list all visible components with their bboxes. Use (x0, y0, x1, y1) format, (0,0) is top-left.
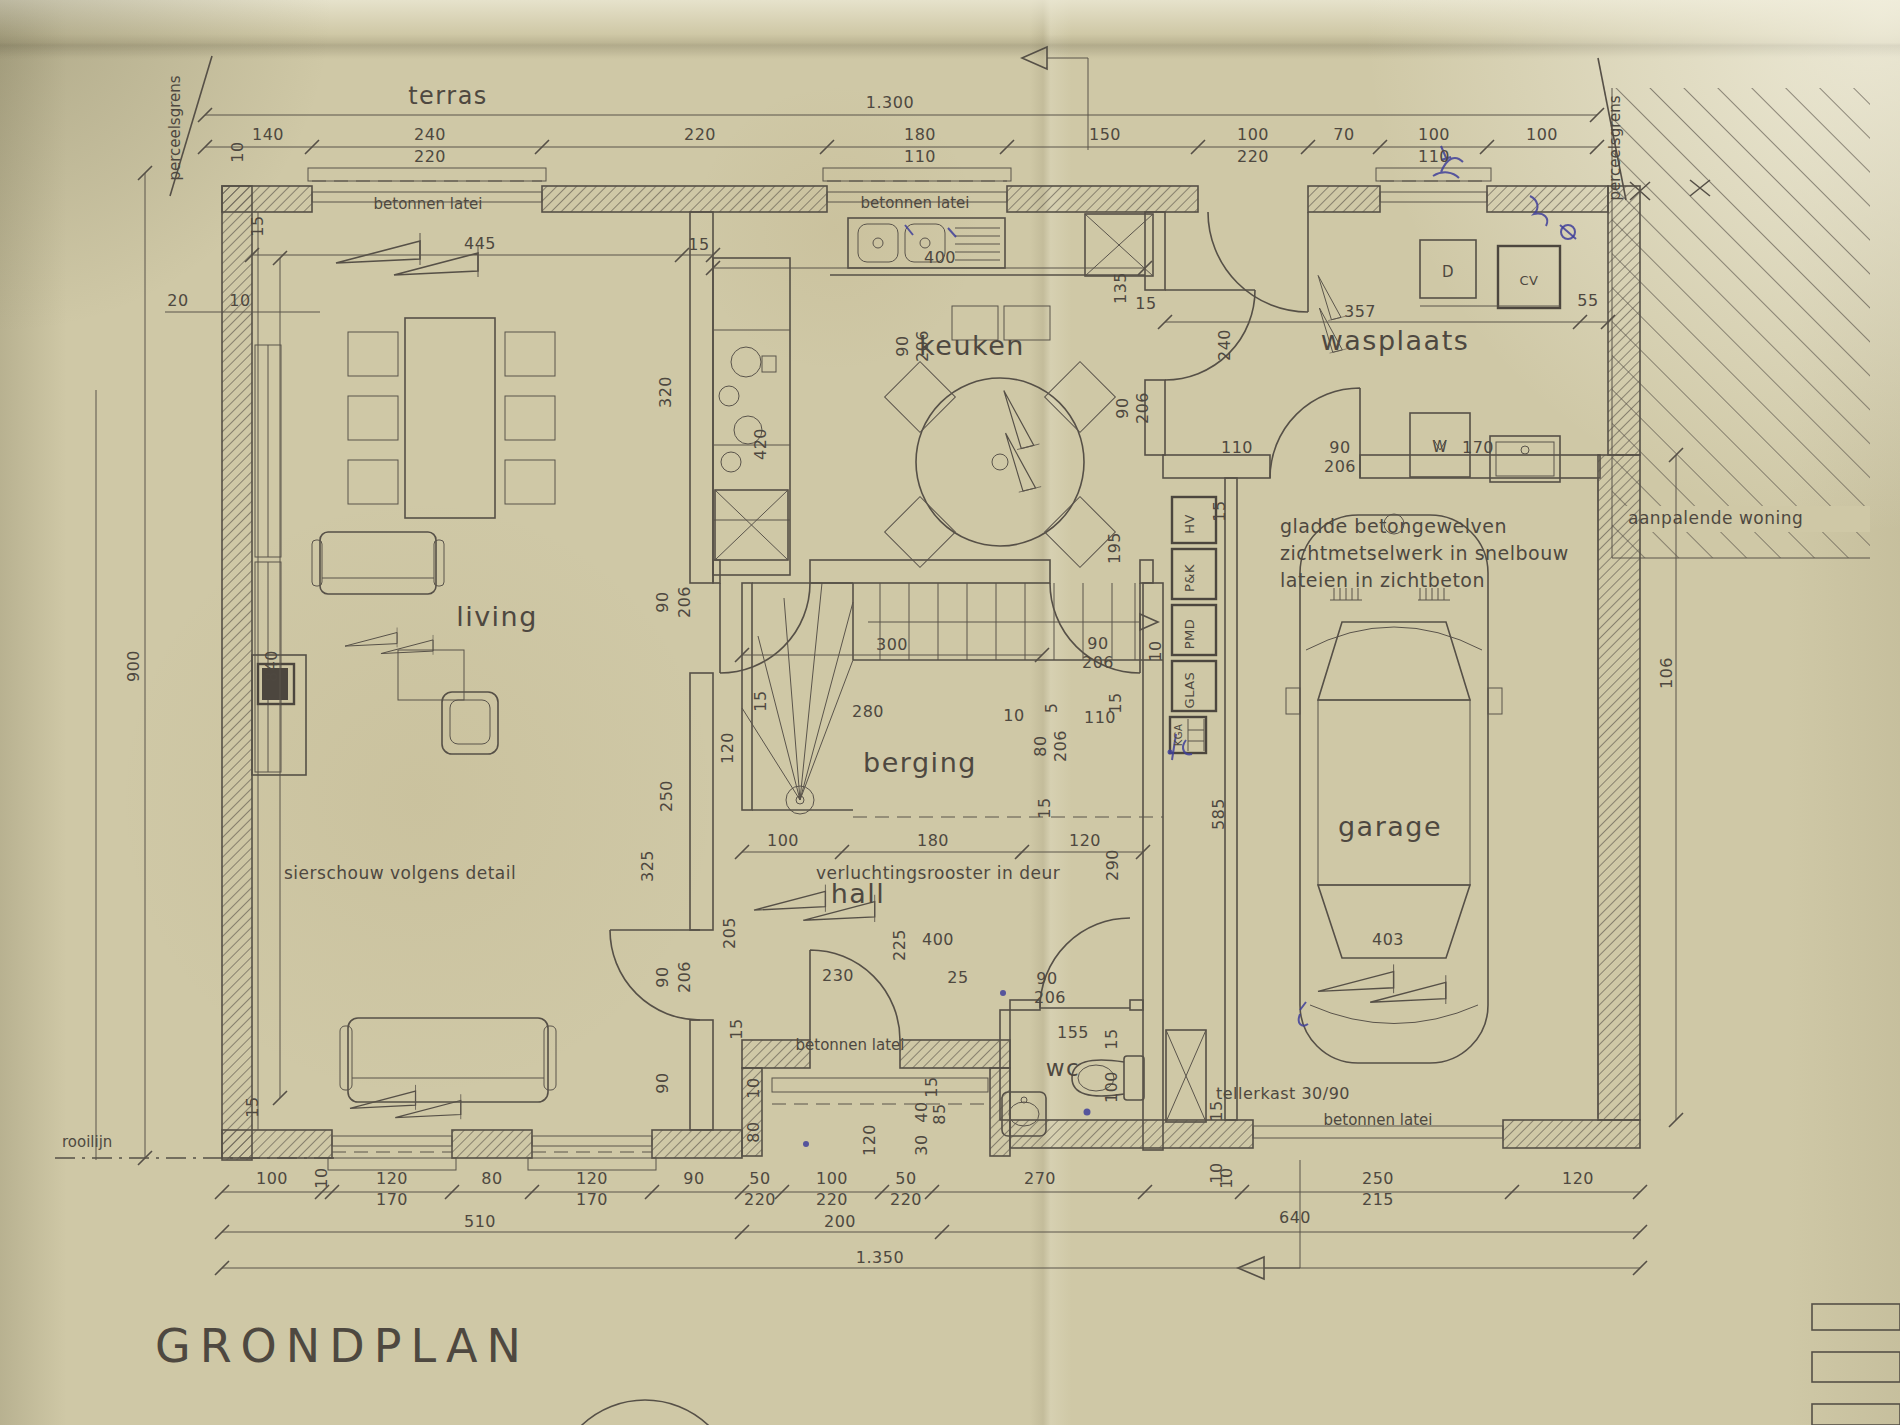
dim-label: 120 (1562, 1169, 1594, 1188)
dim-label: 15 (1210, 500, 1229, 521)
adjoining-house-hatch (1612, 88, 1870, 558)
dim-label: 40 (912, 1101, 931, 1122)
note-betonnen-latei: betonnen latei (374, 195, 483, 213)
dim-label: 120 (576, 1169, 608, 1188)
note-betonnen-latei: betonnen latei (796, 1036, 905, 1054)
dim-label: 110 (1084, 708, 1116, 727)
dim-label: 70 (1333, 125, 1354, 144)
dim-label: 250 (657, 780, 676, 812)
dim-label: 80 (744, 1121, 763, 1142)
dim-label: 15 (751, 690, 770, 711)
dim-label: 55 (1577, 291, 1598, 310)
dim-label: 206 (675, 961, 694, 993)
dim-label: 10 (1146, 640, 1165, 661)
dim-label: 325 (638, 850, 657, 882)
dim-label: 50 (749, 1169, 770, 1188)
dim-label: 15 (1035, 797, 1054, 818)
dim-label: 400 (924, 248, 956, 267)
dim-label: 510 (464, 1212, 496, 1231)
shaft-label-glas: GLAS (1182, 672, 1197, 709)
dim-label: 1.300 (866, 93, 914, 112)
boiler-label: CV (1520, 273, 1539, 288)
dim-label: 206 (1133, 392, 1152, 424)
dim-label: 1.350 (856, 1248, 904, 1267)
north-symbol (553, 1400, 737, 1425)
dim-label: 20 (167, 291, 188, 310)
sofa-small (320, 532, 436, 594)
shaft-label-pmd: PMD (1182, 619, 1197, 650)
slope-symbols (336, 233, 1446, 1119)
dim-label: 30 (912, 1134, 931, 1155)
dim-label: 106 (1657, 657, 1676, 689)
sofa-large (348, 1018, 548, 1102)
dim-label: 50 (895, 1169, 916, 1188)
dim-label: 250 (1362, 1169, 1394, 1188)
note-gewelven-1: gladde betongewelven (1280, 515, 1507, 537)
dim-label: 220 (890, 1190, 922, 1209)
living-furniture (252, 318, 556, 1102)
note-tellerkast: tellerkast 30/90 (1216, 1084, 1350, 1103)
shaft-label-kga: KGA (1173, 724, 1184, 747)
dim-label: 205 (720, 917, 739, 949)
dim-label: 110 (1221, 438, 1253, 457)
dim-label: 400 (922, 930, 954, 949)
dim-label: 90 (1113, 397, 1132, 418)
shaft-label-hv: HV (1182, 514, 1197, 534)
dim-label: 640 (1279, 1208, 1311, 1227)
dim-label: 420 (751, 428, 770, 460)
dim-label: 110 (904, 147, 936, 166)
dim-label: 15 (1102, 1028, 1121, 1049)
dim-label: 900 (124, 650, 143, 682)
dim-label: 80 (1031, 735, 1050, 756)
legend-swatch-concrete (1812, 1352, 1900, 1382)
dim-label: 290 (1103, 849, 1122, 881)
dim-label: 90 (653, 966, 672, 987)
dim-label: 270 (1024, 1169, 1056, 1188)
dim-label: 15 (243, 1096, 262, 1117)
dim-label: 100 (816, 1169, 848, 1188)
dim-label: 100 (1102, 1071, 1121, 1103)
legend-swatch-existing (1812, 1404, 1900, 1425)
room-label-berging: berging (863, 747, 977, 778)
dim-label: 220 (744, 1190, 776, 1209)
dim-label: 150 (1089, 125, 1121, 144)
dim-label: 15 (248, 215, 267, 236)
dim-label: 10 (312, 1167, 331, 1188)
dim-label: 206 (1324, 457, 1356, 476)
boundary-lines (55, 56, 1626, 1160)
staircase (742, 583, 1163, 817)
dim-label: 10 (1217, 1167, 1236, 1188)
dim-label: 445 (464, 234, 496, 253)
dim-label: 90 (893, 335, 912, 356)
dim-label: 206 (913, 330, 932, 362)
dim-label: 15 (688, 235, 709, 254)
shaft-label-pk: P&K (1182, 564, 1197, 592)
dim-label: 10 (1003, 706, 1024, 725)
dim-label: 10 (228, 141, 247, 162)
dim-label: 100 (1418, 125, 1450, 144)
dim-label: 585 (1209, 798, 1228, 830)
laundry-sink (1490, 436, 1560, 482)
dim-label: 15 (922, 1076, 941, 1097)
dim-label: 120 (718, 732, 737, 764)
dim-label: 135 (1111, 272, 1130, 304)
dim-label: 10 (229, 291, 250, 310)
room-label-wc: wc (1046, 1055, 1080, 1081)
dim-label: 206 (1034, 988, 1066, 1007)
dim-label: 357 (1344, 302, 1376, 321)
dim-label: 100 (767, 831, 799, 850)
room-label-living: living (456, 601, 538, 632)
dim-label: 220 (414, 147, 446, 166)
dim-label: 170 (576, 1190, 608, 1209)
dim-label: 100 (256, 1169, 288, 1188)
dim-label: 100 (1237, 125, 1269, 144)
dimension-lines (138, 108, 1683, 1275)
legend (553, 1304, 1900, 1425)
dim-label: 140 (252, 125, 284, 144)
dim-label: 85 (930, 1103, 949, 1124)
dim-label: 206 (675, 586, 694, 618)
dim-label: 220 (684, 125, 716, 144)
dim-label: 90 (683, 1169, 704, 1188)
kitchen-table (916, 378, 1084, 546)
dim-label: 120 (1069, 831, 1101, 850)
dryer-label: D (1442, 263, 1454, 281)
note-sierschouw: sierschouw volgens detail (284, 863, 516, 883)
note-gewelven-3: lateien in zichtbeton (1280, 569, 1485, 591)
dim-label: 195 (1105, 532, 1124, 564)
dim-label: 170 (376, 1190, 408, 1209)
dim-label: 220 (816, 1190, 848, 1209)
note-betonnen-latei: betonnen latei (861, 194, 970, 212)
dim-label: 180 (904, 125, 936, 144)
dim-label: 320 (656, 376, 675, 408)
dim-label: 170 (1462, 438, 1494, 457)
dining-table (405, 318, 495, 518)
dim-label: 280 (852, 702, 884, 721)
dim-label: 240 (1215, 329, 1234, 361)
dim-label: 15 (1207, 1100, 1226, 1121)
dim-label: 10 (744, 1077, 763, 1098)
dim-label: 5 (1042, 703, 1061, 714)
dim-label: 25 (947, 968, 968, 987)
legend-swatch-masonry (1812, 1304, 1900, 1330)
dim-label: 215 (1362, 1190, 1394, 1209)
dim-label: 155 (1057, 1023, 1089, 1042)
dim-label: 110 (1418, 147, 1450, 166)
room-label-wasplaats: wasplaats (1321, 325, 1470, 356)
dim-label: 90 (1087, 634, 1108, 653)
dim-label: 300 (876, 635, 908, 654)
dim-label: 180 (917, 831, 949, 850)
dim-label: 206 (1082, 653, 1114, 672)
note-perceelsgrens-left: perceelsgrens (166, 75, 184, 180)
dim-label: 220 (1237, 147, 1269, 166)
dim-label: 403 (1372, 930, 1404, 949)
dim-label: 90 (1036, 969, 1057, 988)
note-perceelsgrens-right: perceelsgrens (1606, 95, 1624, 200)
dim-label: 120 (376, 1169, 408, 1188)
room-label-garage: garage (1338, 811, 1442, 842)
dim-label: 100 (1526, 125, 1558, 144)
dim-label: 840 (262, 650, 281, 682)
floorplan-svg: terras living keuken wasplaats berging h… (0, 0, 1900, 1425)
washer-label: W (1432, 438, 1447, 456)
dim-label: 225 (890, 929, 909, 961)
toilet-tank (1124, 1056, 1144, 1100)
room-label-keuken: keuken (919, 330, 1025, 361)
note-betonnen-latei: betonnen latei (1324, 1111, 1433, 1129)
dim-label: 80 (481, 1169, 502, 1188)
note-verluchting: verluchtingsrooster in deur (816, 863, 1060, 883)
dim-label: 90 (653, 1072, 672, 1093)
dim-label: 15 (727, 1018, 746, 1039)
dim-label: 120 (860, 1124, 879, 1156)
note-aanpalende-woning: aanpalende woning (1628, 508, 1803, 528)
note-rooilijn: rooilijn (62, 1133, 112, 1151)
dim-label: 200 (824, 1212, 856, 1231)
note-gewelven-2: zichtmetselwerk in snelbouw (1280, 542, 1569, 564)
dim-label: 230 (822, 966, 854, 985)
room-label-terras: terras (408, 82, 488, 110)
dim-label: 240 (414, 125, 446, 144)
dim-label: 15 (1135, 294, 1156, 313)
blueprint-scan: terras living keuken wasplaats berging h… (0, 0, 1900, 1425)
dim-label: 90 (1329, 438, 1350, 457)
dim-label: 90 (653, 591, 672, 612)
drawing-title: GRONDPLAN (155, 1319, 530, 1373)
dim-label: 206 (1051, 730, 1070, 762)
